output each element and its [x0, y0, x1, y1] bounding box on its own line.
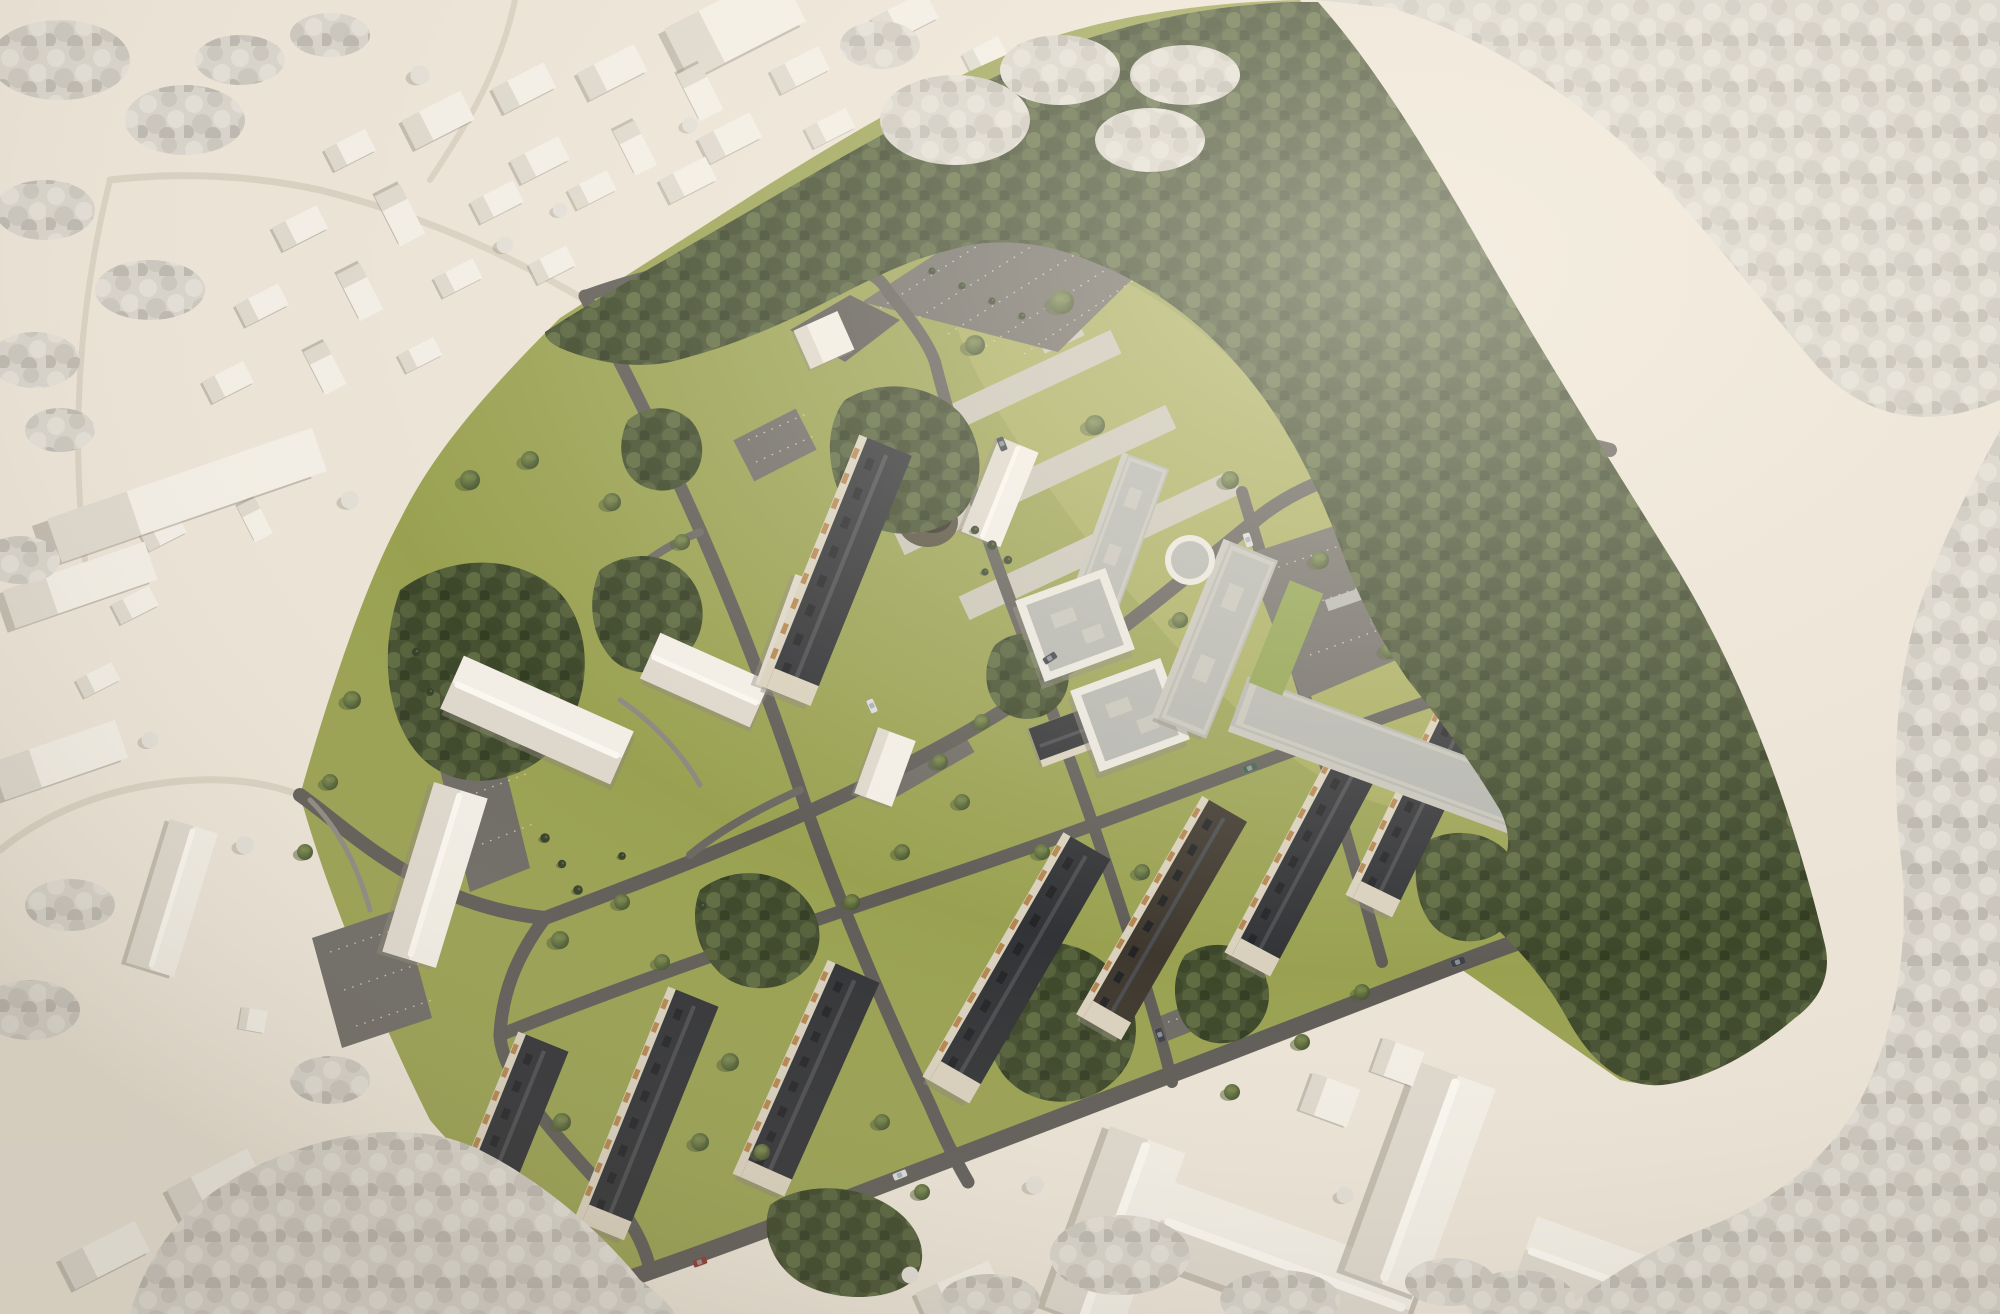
- masterplan-render: [0, 0, 2000, 1314]
- sunlight-overlay: [0, 0, 2000, 1314]
- aerial-render-stage: [0, 0, 2000, 1314]
